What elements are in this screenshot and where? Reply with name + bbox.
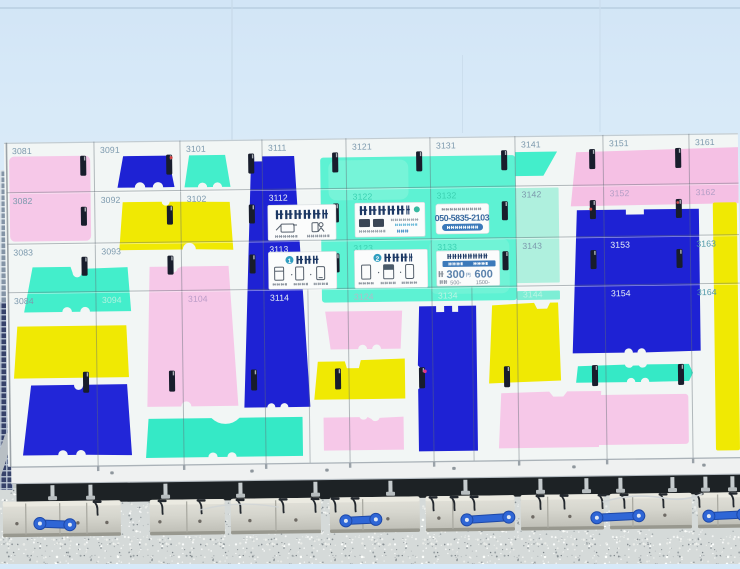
svg-text:3162: 3162 (696, 187, 716, 197)
svg-text:3163: 3163 (696, 238, 716, 248)
svg-text:3133: 3133 (437, 242, 457, 252)
svg-text:3154: 3154 (611, 288, 631, 298)
svg-text:3091: 3091 (100, 145, 120, 155)
svg-text:3111: 3111 (268, 143, 287, 153)
svg-text:3131: 3131 (436, 140, 456, 150)
svg-text:3081: 3081 (12, 146, 32, 156)
svg-text:3121: 3121 (352, 141, 372, 151)
svg-text:3101: 3101 (186, 144, 206, 154)
svg-text:3143: 3143 (522, 241, 542, 251)
svg-text:3152: 3152 (610, 188, 630, 198)
svg-text:3102: 3102 (187, 194, 207, 204)
svg-text:3151: 3151 (609, 138, 629, 148)
svg-text:3104: 3104 (188, 294, 208, 304)
svg-text:3144: 3144 (523, 289, 543, 299)
svg-text:3124: 3124 (354, 291, 374, 301)
svg-text:3084: 3084 (14, 296, 34, 306)
svg-text:3132: 3132 (437, 190, 457, 200)
svg-text:・: ・ (376, 271, 382, 277)
svg-text:3093: 3093 (101, 246, 121, 256)
svg-text:1500-: 1500- (476, 280, 490, 286)
svg-text:3082: 3082 (13, 196, 33, 206)
svg-text:・: ・ (308, 273, 314, 279)
svg-text:円: 円 (466, 273, 471, 279)
svg-text:050-5835-2103: 050-5835-2103 (435, 212, 490, 223)
svg-text:600: 600 (474, 268, 493, 280)
svg-text:・: ・ (398, 271, 404, 277)
svg-text:3141: 3141 (521, 139, 541, 149)
svg-text:3153: 3153 (610, 240, 630, 250)
svg-text:3134: 3134 (438, 290, 458, 300)
svg-text:2: 2 (376, 256, 380, 263)
svg-text:3083: 3083 (13, 247, 33, 257)
svg-text:500-: 500- (450, 280, 461, 286)
svg-text:3164: 3164 (697, 287, 717, 297)
svg-text:3161: 3161 (695, 137, 715, 147)
svg-text:3094: 3094 (102, 295, 122, 305)
svg-text:3142: 3142 (522, 189, 542, 199)
svg-text:・: ・ (289, 273, 295, 279)
svg-text:3122: 3122 (353, 191, 373, 201)
svg-text:1: 1 (288, 258, 292, 265)
svg-text:3112: 3112 (269, 193, 288, 203)
svg-text:300: 300 (446, 269, 465, 281)
svg-text:3114: 3114 (270, 293, 289, 303)
svg-text:3092: 3092 (101, 195, 121, 205)
